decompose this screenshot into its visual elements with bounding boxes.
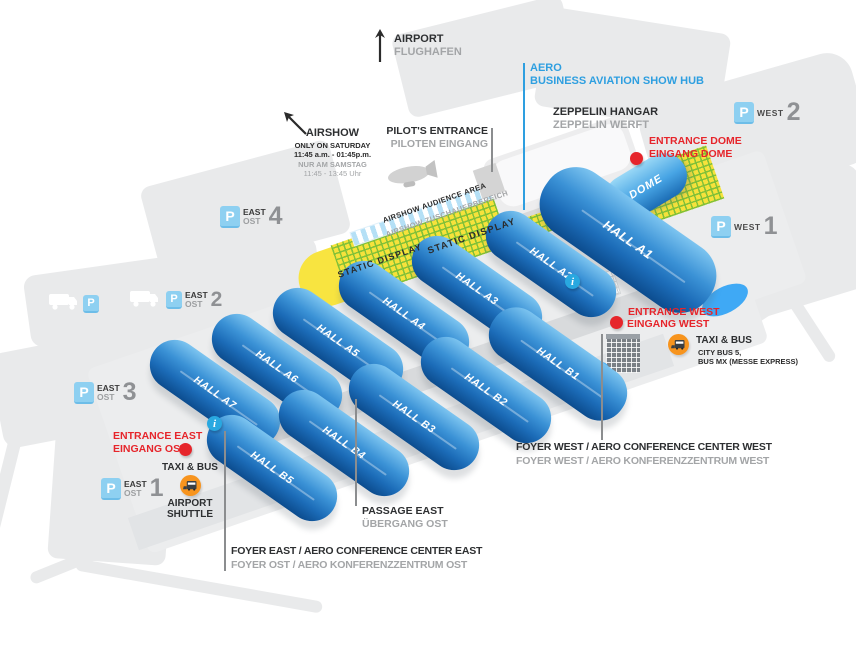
hall-label: HALL A1 [600,218,655,263]
parking-area-label: WEST [734,222,761,232]
parking-area-label-de: OST [97,393,120,402]
foyer-west-leader-line [601,334,603,440]
parking-marker-west-2: P WEST 2 [734,100,800,125]
caravan-icon [48,291,78,311]
foyer-east-label-en: FOYER EAST / AERO CONFERENCE CENTER EAST [231,545,482,557]
entrance-west-label-en: ENTRANCE WEST [628,306,720,318]
parking-number: 1 [764,214,778,239]
hall-label: HALL A5 [314,322,361,360]
passage-east-label-de: ÜBERGANG OST [362,518,448,530]
airport-arrow-icon [372,28,388,64]
aero-leader-line [523,63,525,210]
airport-label-en: AIRPORT [394,33,444,45]
entrance-east-label-en: ENTRANCE EAST [113,430,202,442]
passage-east-leader-line [355,399,357,506]
hall-label: HALL A7 [191,374,238,412]
taxi-bus-icon-east [180,475,201,496]
passage-east-label-en: PASSAGE EAST [362,505,444,517]
parking-icon: P [83,295,99,313]
parking-number: 2 [787,100,801,125]
west-building [606,334,640,373]
road [787,295,838,364]
hall-label: HALL B5 [248,449,296,487]
parking-number: 3 [123,380,137,405]
entrance-dome-label-de: EINGANG DOME [649,148,732,160]
parking-marker-west-1: P WEST 1 [711,214,777,239]
bus-icon [671,339,686,350]
entrance-west-dot [610,316,623,329]
parking-marker-east-4: P EASTOST 4 [220,204,283,229]
parking-icon: P [220,206,240,228]
taxi-bus-east-line1: AIRPORT [155,498,225,509]
taxi-bus-icon-west [668,334,689,355]
venue-map: DOME HALL A1 HALL A2 HALL A3 HALL A4 HAL… [0,0,856,645]
parking-area-label-de: OST [124,489,147,498]
aero-label-line1: AERO [530,62,562,74]
entrance-east-label-de: EINGANG OST [113,443,187,455]
hall-label: HALL B2 [462,371,510,409]
hall-label: HALL B3 [390,398,438,436]
taxi-bus-west-line2: BUS MX (MESSE EXPRESS) [698,357,798,366]
airshow-sub4: 11:45 - 13:45 Uhr [270,169,395,178]
parking-number: 4 [269,204,283,229]
foyer-east-label-de: FOYER OST / AERO KONFERENZZENTRUM OST [231,559,467,571]
pilots-entrance-label-en: PILOT'S ENTRANCE [352,125,488,137]
bus-icon [183,480,198,491]
aero-label-line2: BUSINESS AVIATION SHOW HUB [530,75,704,87]
parking-marker-east-3: P EASTOST 3 [74,380,137,405]
hall-label: HALL A4 [380,295,427,333]
dome-label: DOME [627,172,665,201]
airshow-sub2: 11:45 a.m. - 01:45p.m. [270,150,395,159]
info-glyph: i [213,418,216,430]
zeppelin-hangar-label-de: ZEPPELIN WERFT [553,119,649,131]
taxi-bus-east-title: TAXI & BUS [160,462,220,473]
parking-icon: P [711,216,731,238]
hall-label: HALL A3 [453,270,500,308]
info-icon-west: i [565,274,580,289]
parking-area-label-de: OST [243,217,266,226]
hall-label: HALL B1 [534,345,582,383]
caravan-icon [129,288,159,308]
taxi-bus-east-line2: SHUTTLE [155,509,225,520]
entrance-dome-dot [630,152,643,165]
airport-label-de: FLUGHAFEN [394,46,462,58]
pilots-entrance-label-de: PILOTEN EINGANG [352,138,488,150]
parking-icon: P [101,478,121,500]
entrance-west-label-de: EINGANG WEST [627,318,709,330]
taxi-bus-west-title: TAXI & BUS [696,335,752,346]
parking-number: 2 [211,289,223,310]
info-icon-east: i [207,416,222,431]
parking-marker-plain: P [83,295,99,313]
roundabout [14,400,52,434]
foyer-west-label-en: FOYER WEST / AERO CONFERENCE CENTER WEST [516,441,772,453]
parking-marker-east-2: P EASTOST 2 [166,289,222,310]
hall-label: HALL A6 [253,348,300,386]
info-glyph: i [571,276,574,288]
airshow-sub3: NUR AM SAMSTAG [270,160,395,169]
parking-area-label: WEST [757,108,784,118]
taxi-bus-west-line1: CITY BUS 5, [698,348,741,357]
parking-icon: P [166,291,182,309]
parking-area-label-de: OST [185,300,208,309]
pilots-entrance-leader-line [491,128,493,172]
hall-label: HALL B4 [320,424,368,462]
zeppelin-hangar-label-en: ZEPPELIN HANGAR [553,106,658,118]
parking-icon: P [734,102,754,124]
foyer-west-label-de: FOYER WEST / AERO KONFERENZZENTRUM WEST [516,455,769,467]
entrance-dome-label-en: ENTRANCE DOME [649,135,742,147]
parking-icon: P [74,382,94,404]
